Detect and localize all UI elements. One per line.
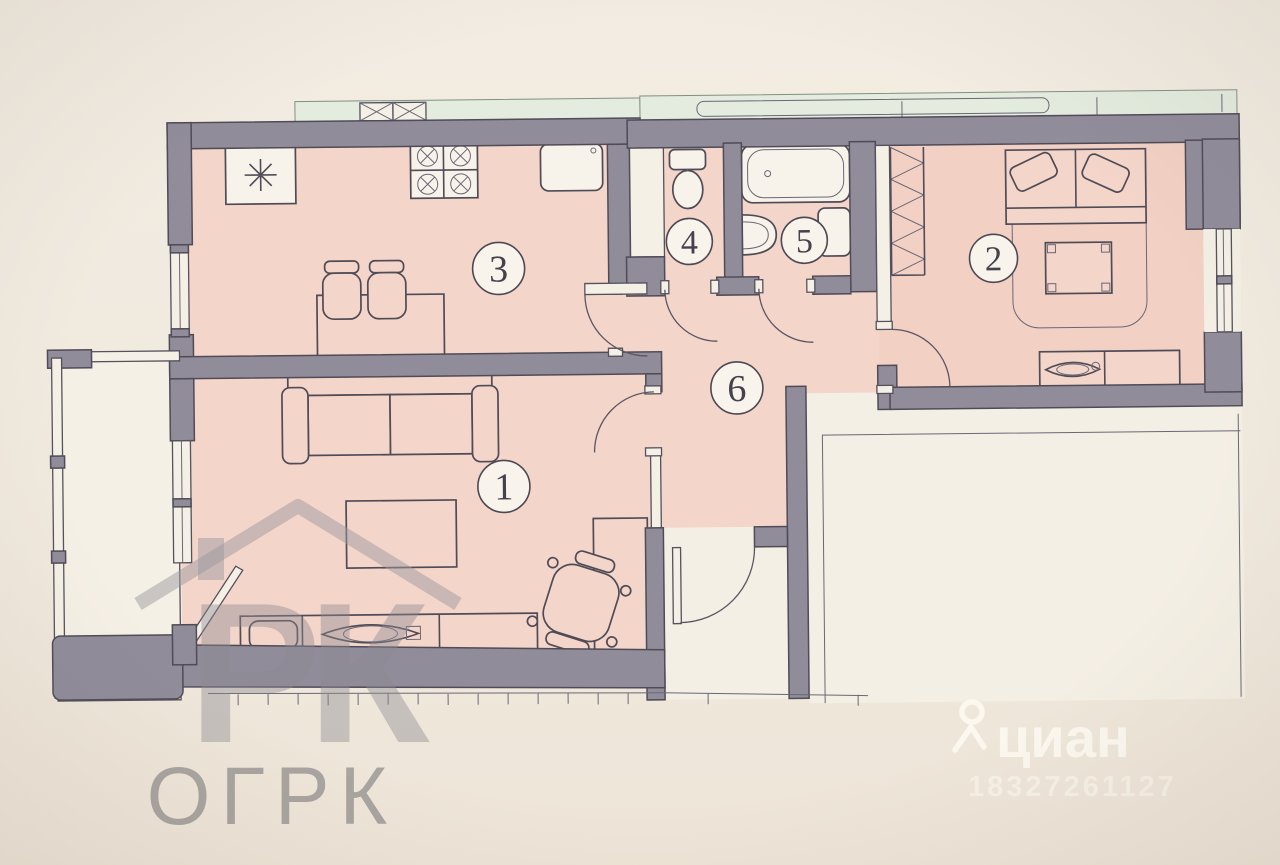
floor-plan-photo: 1 2 3 4 5 6 РК ОГРК [0, 0, 1280, 865]
floor-plan: 1 2 3 4 5 6 РК ОГРК [0, 0, 1280, 865]
photo-vignette [0, 0, 1280, 865]
